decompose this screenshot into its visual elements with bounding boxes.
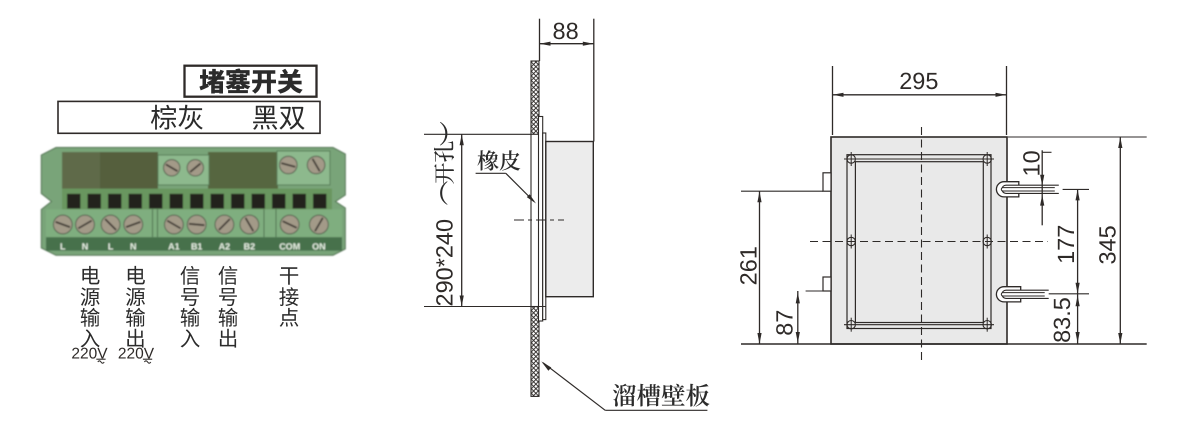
svg-text:B1: B1 [191, 241, 203, 251]
svg-text:L: L [60, 241, 66, 251]
svg-text:290*240: 290*240 [432, 219, 458, 307]
svg-text:220V: 220V [71, 345, 108, 362]
svg-text:ON: ON [312, 241, 326, 251]
svg-text:87: 87 [772, 310, 798, 336]
svg-text:88: 88 [553, 18, 579, 44]
svg-text:L: L [108, 241, 114, 251]
svg-text:83.5: 83.5 [1049, 297, 1075, 343]
svg-text:A1: A1 [168, 241, 180, 251]
svg-text:N: N [82, 241, 89, 251]
svg-text:A2: A2 [219, 241, 231, 251]
svg-text:220V: 220V [118, 345, 155, 362]
svg-text:COM: COM [279, 241, 300, 251]
svg-text:261: 261 [736, 246, 762, 285]
svg-text:B2: B2 [244, 241, 256, 251]
svg-text:10: 10 [1019, 150, 1045, 176]
svg-text:177: 177 [1053, 225, 1079, 264]
svg-text:295: 295 [899, 68, 938, 94]
svg-text:345: 345 [1095, 225, 1121, 264]
svg-text:N: N [130, 241, 137, 251]
